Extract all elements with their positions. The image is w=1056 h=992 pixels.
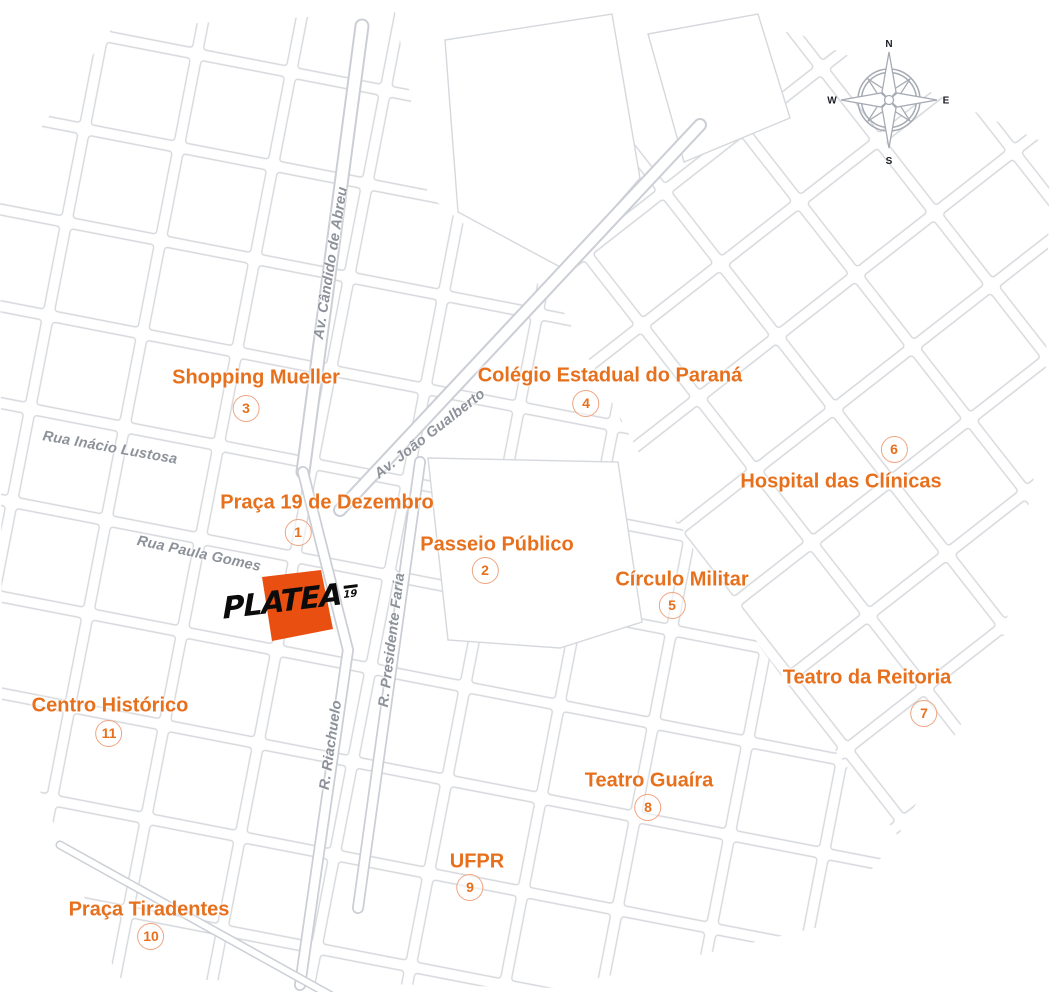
poi-label: Teatro da Reitoria [783, 667, 952, 690]
poi-hospital-das-clinicas: Hospital das Clínicas 6 [740, 471, 941, 494]
poi-teatro-guaira: Teatro Guaíra 8 [585, 770, 714, 793]
poi-shopping-mueller: Shopping Mueller 3 [172, 367, 340, 390]
poi-label: Praça Tiradentes [69, 899, 230, 922]
poi-colegio-estadual-do-parana: Colégio Estadual do Paraná 4 [478, 365, 743, 388]
poi-number-badge: 1 [285, 519, 312, 546]
poi-number-badge: 11 [96, 720, 123, 747]
poi-ufpr: UFPR 9 [450, 851, 504, 874]
poi-label: UFPR [450, 851, 504, 874]
poi-number-badge: 3 [233, 395, 260, 422]
compass-north-label: N [885, 39, 892, 50]
poi-teatro-da-reitoria: Teatro da Reitoria 7 [783, 667, 952, 690]
poi-label: Praça 19 de Dezembro [220, 492, 433, 515]
poi-number-badge: 5 [658, 592, 685, 619]
poi-praca-tiradentes: Praça Tiradentes 10 [69, 899, 230, 922]
poi-label: Hospital das Clínicas [740, 471, 941, 494]
poi-label: Círculo Militar [615, 569, 748, 592]
poi-passeio-publico: Passeio Público 2 [420, 534, 573, 557]
poi-label: Centro Histórico [32, 695, 189, 718]
poi-label: Passeio Público [420, 534, 573, 557]
poi-number-badge: 8 [635, 794, 662, 821]
poi-number-badge: 4 [572, 390, 599, 417]
poi-centro-historico: Centro Histórico 11 [32, 695, 189, 718]
poi-praca-19-de-dezembro: Praça 19 de Dezembro 1 [220, 492, 433, 515]
compass-west-label: W [827, 96, 837, 107]
platea-logo-superscript: 19 [343, 584, 357, 601]
compass-east-label: E [943, 96, 950, 107]
poi-number-badge: 6 [880, 436, 907, 463]
poi-label: Shopping Mueller [172, 367, 340, 390]
poi-label: Teatro Guaíra [585, 770, 714, 793]
poi-number-badge: 10 [138, 923, 165, 950]
city-map: Av. Cândido de Abreu Rua Inácio Lustosa … [0, 0, 1056, 992]
poi-circulo-militar: Círculo Militar 5 [615, 569, 748, 592]
compass-south-label: S [886, 156, 893, 167]
poi-number-badge: 2 [471, 557, 498, 584]
poi-label: Colégio Estadual do Paraná [478, 365, 743, 388]
poi-number-badge: 7 [911, 700, 938, 727]
poi-number-badge: 9 [456, 874, 483, 901]
compass-rose: N S W E [824, 36, 954, 168]
